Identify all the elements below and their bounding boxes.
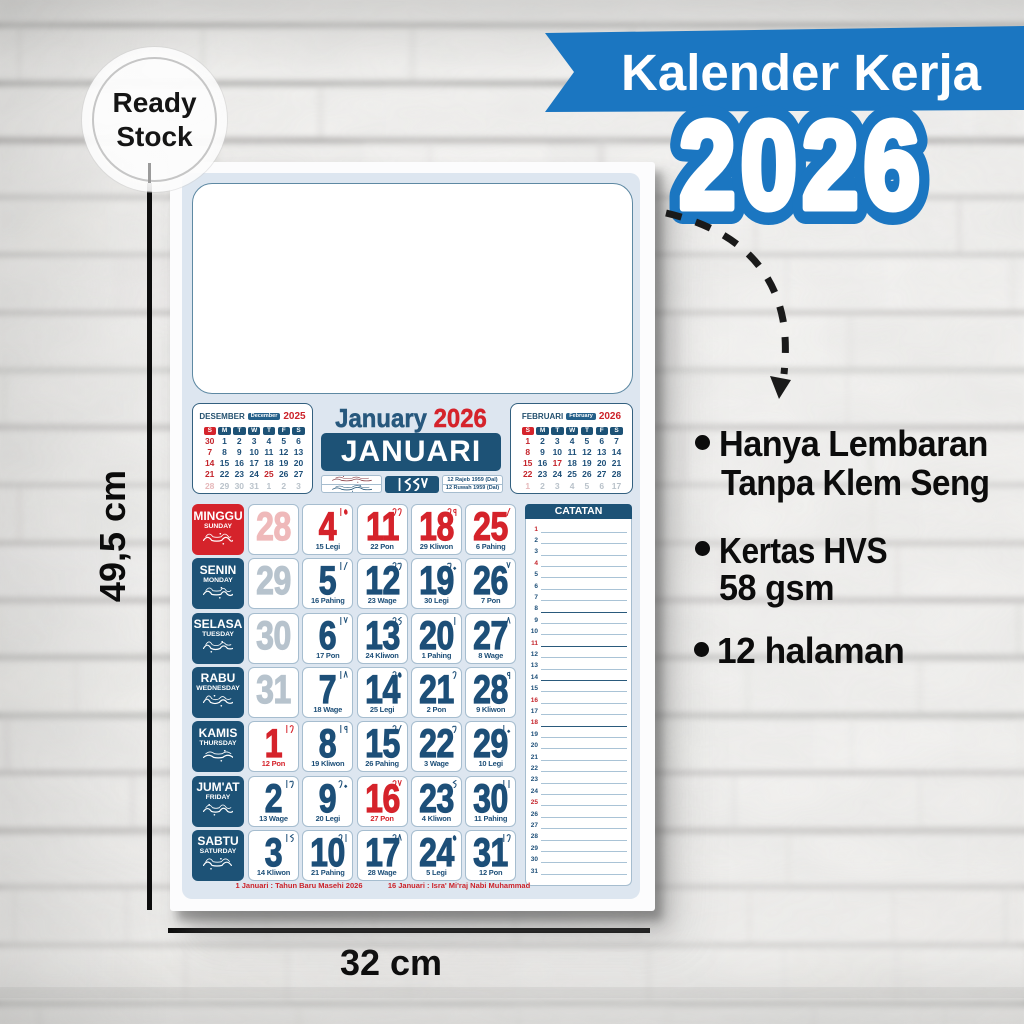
svg-text:2026: 2026 [679, 96, 925, 235]
svg-text:Kalender Kerja: Kalender Kerja [621, 44, 982, 101]
